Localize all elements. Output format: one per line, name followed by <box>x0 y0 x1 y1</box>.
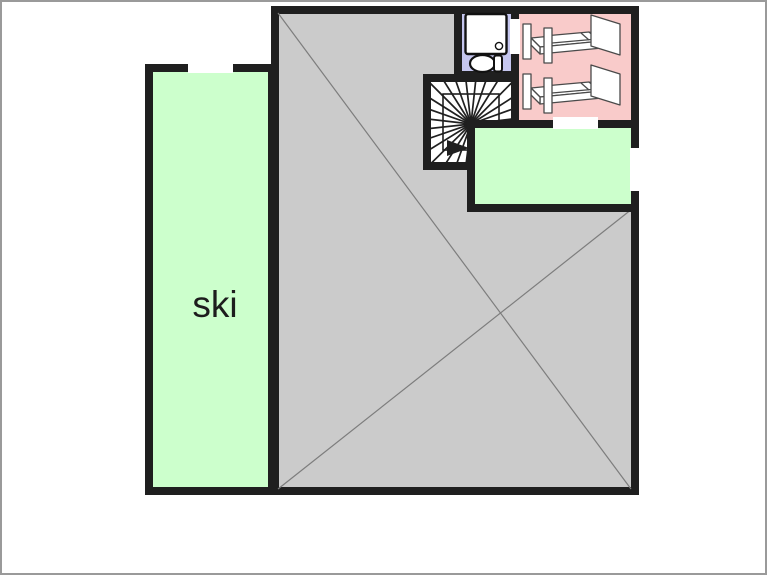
room-ski-room: ski <box>149 68 272 491</box>
ski-room-walls <box>149 68 272 491</box>
shower-drain-icon <box>495 42 502 49</box>
bunk-room-door-opening <box>553 117 598 129</box>
bed-post-far <box>544 78 552 113</box>
ski-room-door-opening <box>188 62 233 73</box>
bathroom-door-opening <box>510 19 520 54</box>
floor-plan-svg: ski <box>2 2 767 575</box>
bed-post-near <box>523 74 531 109</box>
storage-room-walls <box>471 124 635 208</box>
room-storage-room <box>471 124 635 208</box>
bed-post-near <box>523 24 531 59</box>
floor-plan: ski <box>0 0 767 575</box>
ski-room-label: ski <box>192 284 237 325</box>
room-bunk-room <box>515 10 635 124</box>
room-bathroom <box>458 10 515 75</box>
toilet-bowl-icon <box>470 55 495 72</box>
storage-room-door-opening <box>630 148 640 191</box>
bed-post-far <box>544 28 552 63</box>
toilet-tank-icon <box>494 56 502 72</box>
